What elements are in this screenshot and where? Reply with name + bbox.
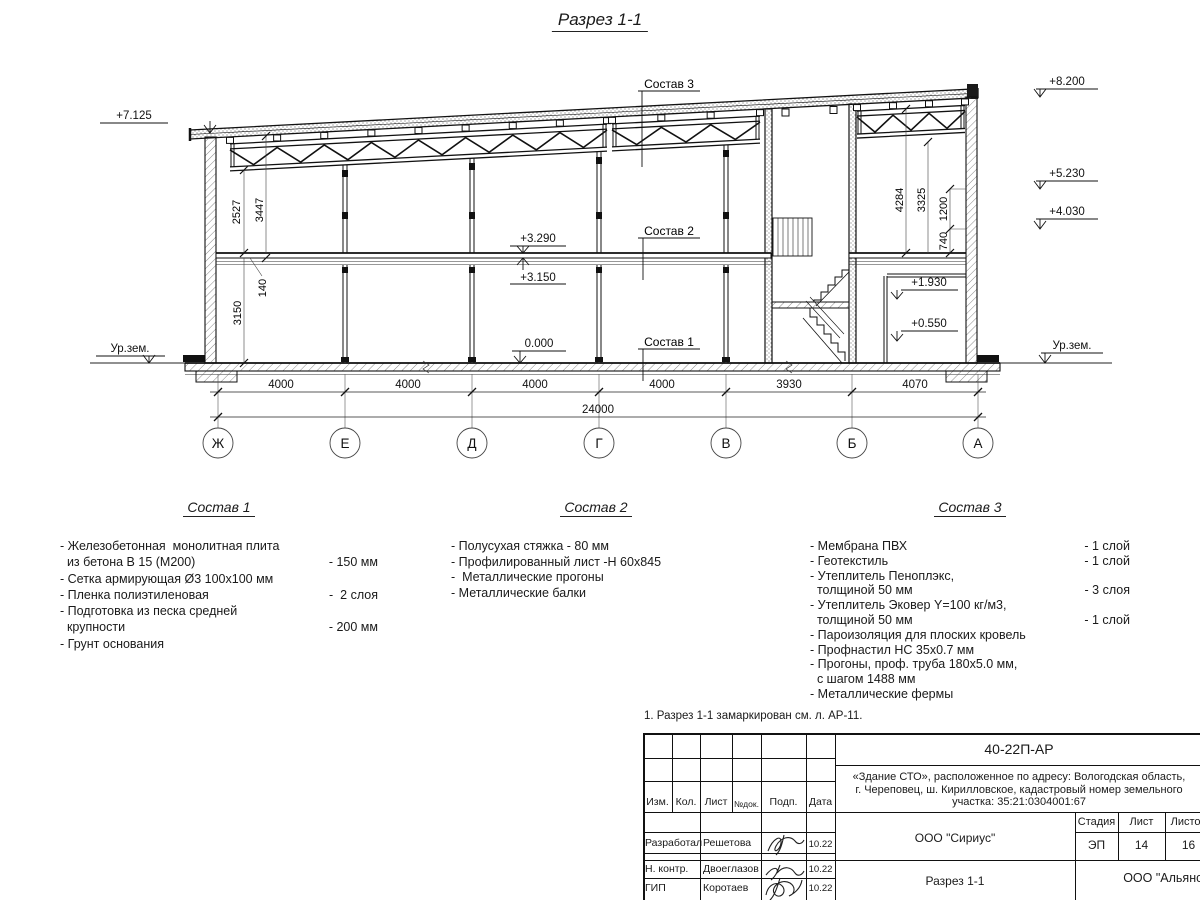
dim-140: 140 bbox=[257, 279, 269, 297]
dim-total: 24000 bbox=[582, 404, 614, 416]
row-date-1: 10.22 bbox=[806, 839, 835, 850]
row-name-1: Решетова bbox=[703, 837, 760, 849]
list-item: - Прогоны, проф. труба 180х5.0 мм, bbox=[810, 658, 1130, 673]
sheet-name: Разрез 1-1 bbox=[835, 874, 1075, 888]
roof-slab bbox=[190, 84, 978, 141]
list-item: - Геотекстиль- 1 слой bbox=[810, 555, 1130, 570]
col-list: Лист bbox=[700, 796, 732, 808]
mark-5230: +5.230 bbox=[1049, 168, 1085, 180]
ground-label-left: Ур.зем. bbox=[110, 343, 149, 355]
col-podp: Подп. bbox=[761, 796, 806, 808]
dim-span-1: 4000 bbox=[268, 379, 294, 391]
list-item: - Мембрана ПВХ- 1 слой bbox=[810, 540, 1130, 555]
list-item: - Утеплитель Пеноплэкс, bbox=[810, 570, 1130, 585]
mark-8200: +8.200 bbox=[1049, 76, 1085, 88]
axis-a: А bbox=[973, 436, 982, 451]
mark-7125: +7.125 bbox=[116, 110, 152, 122]
col-ndok: №док. bbox=[732, 799, 761, 809]
composition-1-title: Состав 1 bbox=[60, 500, 378, 514]
list-item: - Пленка полиэтиленовая- 2 слоя bbox=[60, 589, 378, 605]
stage-value: ЭП bbox=[1075, 838, 1118, 852]
layer-label-3: Состав 3 bbox=[644, 77, 694, 91]
col-izm: Изм. bbox=[643, 796, 672, 808]
mark-3150: +3.150 bbox=[520, 272, 556, 284]
org-designer: ООО "Сириус" bbox=[835, 831, 1075, 845]
list-item: толщиной 50 мм- 3 слоя bbox=[810, 584, 1130, 599]
layer-label-2: Состав 2 bbox=[644, 224, 694, 238]
col-data: Дата bbox=[806, 796, 835, 808]
sheet-label: Лист bbox=[1118, 816, 1165, 828]
sheet-number: 14 bbox=[1118, 838, 1165, 852]
mark-1930: +1.930 bbox=[911, 277, 947, 289]
mark-4030: +4.030 bbox=[1049, 206, 1085, 218]
list-item: - Металлические прогоны bbox=[451, 571, 741, 587]
row-date-2: 10.22 bbox=[806, 864, 835, 875]
mark-0000: 0.000 bbox=[525, 338, 554, 350]
list-item: - Полусухая стяжка - 80 мм bbox=[451, 540, 741, 556]
sheets-total: 16 bbox=[1165, 838, 1200, 852]
dim-span-3: 4000 bbox=[522, 379, 548, 391]
mark-0550: +0.550 bbox=[911, 318, 947, 330]
dim-3150: 3150 bbox=[232, 301, 244, 325]
list-item: - Профилированный лист -Н 60х845 bbox=[451, 556, 741, 572]
dim-3447: 3447 bbox=[254, 198, 266, 222]
list-item: - Профнастил НС 35х0.7 мм bbox=[810, 644, 1130, 659]
doc-number: 40-22П-АР bbox=[835, 741, 1200, 757]
dim-3325: 3325 bbox=[916, 188, 928, 212]
list-item: - Пароизоляция для плоских кровель bbox=[810, 629, 1130, 644]
dim-4284: 4284 bbox=[894, 188, 906, 212]
row-role-2: Н. контр. bbox=[645, 863, 700, 875]
list-item: из бетона В 15 (М200)- 150 мм bbox=[60, 556, 378, 572]
axis-zh: Ж bbox=[212, 436, 225, 451]
list-item: с шагом 1488 мм bbox=[810, 673, 1130, 688]
dim-span-4: 4000 bbox=[649, 379, 675, 391]
dimension-chains: 4000 4000 4000 4000 3930 4070 24000 bbox=[210, 374, 986, 428]
list-item: - Подготовка из песка средней bbox=[60, 605, 378, 621]
composition-3-title: Состав 3 bbox=[810, 500, 1130, 514]
composition-3: Состав 3 - Мембрана ПВХ- 1 слой - Геотек… bbox=[810, 500, 1130, 703]
axis-g: Г bbox=[595, 436, 603, 451]
row-role-1: Разработал bbox=[645, 837, 700, 849]
list-item: - Железобетонная монолитная плита bbox=[60, 540, 378, 556]
list-item: крупности- 200 мм bbox=[60, 621, 378, 637]
dim-1200: 1200 bbox=[938, 197, 950, 221]
list-item: - Утеплитель Эковер Y=100 кг/м3, bbox=[810, 599, 1130, 614]
org-contractor: ООО "Альянс" bbox=[1075, 871, 1200, 885]
row-date-3: 10.22 bbox=[806, 883, 835, 894]
composition-2-title: Состав 2 bbox=[451, 500, 741, 514]
list-item: - Грунт основания bbox=[60, 638, 378, 654]
dim-span-5: 3930 bbox=[776, 379, 802, 391]
layer-label-1: Состав 1 bbox=[644, 335, 694, 349]
col-kol: Кол. bbox=[672, 796, 700, 808]
axis-v: В bbox=[721, 436, 730, 451]
row-name-3: Коротаев bbox=[703, 882, 761, 894]
axis-bubbles: Ж Е Д Г В Б А bbox=[203, 428, 993, 458]
drawing-sheet: Разрез 1-1 bbox=[0, 0, 1200, 900]
dim-2527: 2527 bbox=[231, 200, 243, 224]
row-role-3: ГИП bbox=[645, 882, 700, 894]
dim-span-6: 4070 bbox=[902, 379, 928, 391]
ground-label-right: Ур.зем. bbox=[1052, 340, 1091, 352]
axis-e: Е bbox=[340, 436, 349, 451]
row-name-2: Двоеглазов bbox=[703, 863, 761, 875]
object-address: «Здание СТО», расположенное по адресу: В… bbox=[835, 771, 1200, 809]
list-item: - Сетка армирующая Ø3 100х100 мм bbox=[60, 573, 378, 589]
list-item: - Металлические балки bbox=[451, 587, 741, 603]
list-item: - Металлические фермы bbox=[810, 688, 1130, 703]
dim-740: 740 bbox=[938, 232, 950, 250]
composition-1: Состав 1 - Железобетонная монолитная пли… bbox=[60, 500, 378, 654]
composition-2: Состав 2 - Полусухая стяжка - 80 мм - Пр… bbox=[451, 500, 741, 603]
title-block: Изм. Кол. Лист №док. Подп. Дата 40-22П-А… bbox=[643, 733, 1200, 900]
sheets-label: Листов bbox=[1165, 816, 1200, 828]
axis-b: Б bbox=[848, 436, 857, 451]
staircase bbox=[772, 218, 849, 363]
dim-span-2: 4000 bbox=[395, 379, 421, 391]
axis-d: Д bbox=[467, 436, 476, 451]
list-item: толщиной 50 мм- 1 слой bbox=[810, 614, 1130, 629]
sheet-note: 1. Разрез 1-1 замаркирован см. л. АР-11. bbox=[644, 710, 862, 722]
mark-3290: +3.290 bbox=[520, 233, 556, 245]
stage-label: Стадия bbox=[1075, 816, 1118, 828]
